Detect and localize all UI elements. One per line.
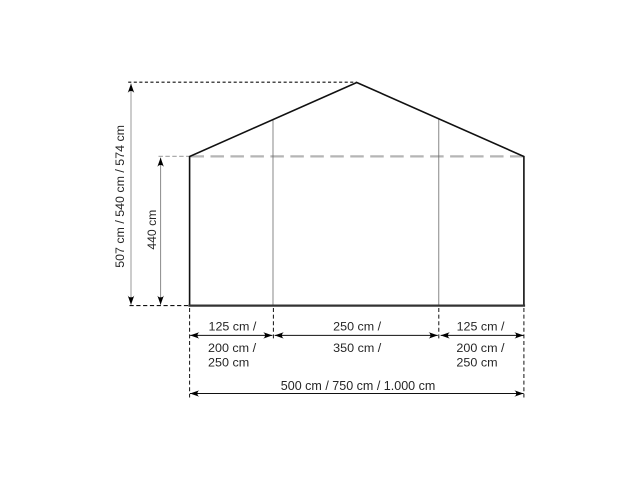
svg-text:200 cm /: 200 cm / bbox=[208, 341, 257, 355]
svg-text:125 cm /: 125 cm / bbox=[209, 320, 257, 334]
svg-text:440 cm: 440 cm bbox=[145, 210, 159, 250]
svg-text:200 cm /: 200 cm / bbox=[456, 341, 505, 355]
svg-text:250 cm /: 250 cm / bbox=[333, 320, 381, 334]
svg-text:507 cm / 540 cm / 574 cm: 507 cm / 540 cm / 574 cm bbox=[113, 125, 127, 268]
svg-text:250 cm: 250 cm bbox=[208, 356, 249, 370]
svg-text:500 cm / 750 cm / 1.000 cm: 500 cm / 750 cm / 1.000 cm bbox=[281, 378, 436, 393]
svg-text:350 cm /: 350 cm / bbox=[333, 341, 382, 355]
svg-text:125 cm /: 125 cm / bbox=[457, 320, 505, 334]
svg-text:250 cm: 250 cm bbox=[456, 356, 497, 370]
